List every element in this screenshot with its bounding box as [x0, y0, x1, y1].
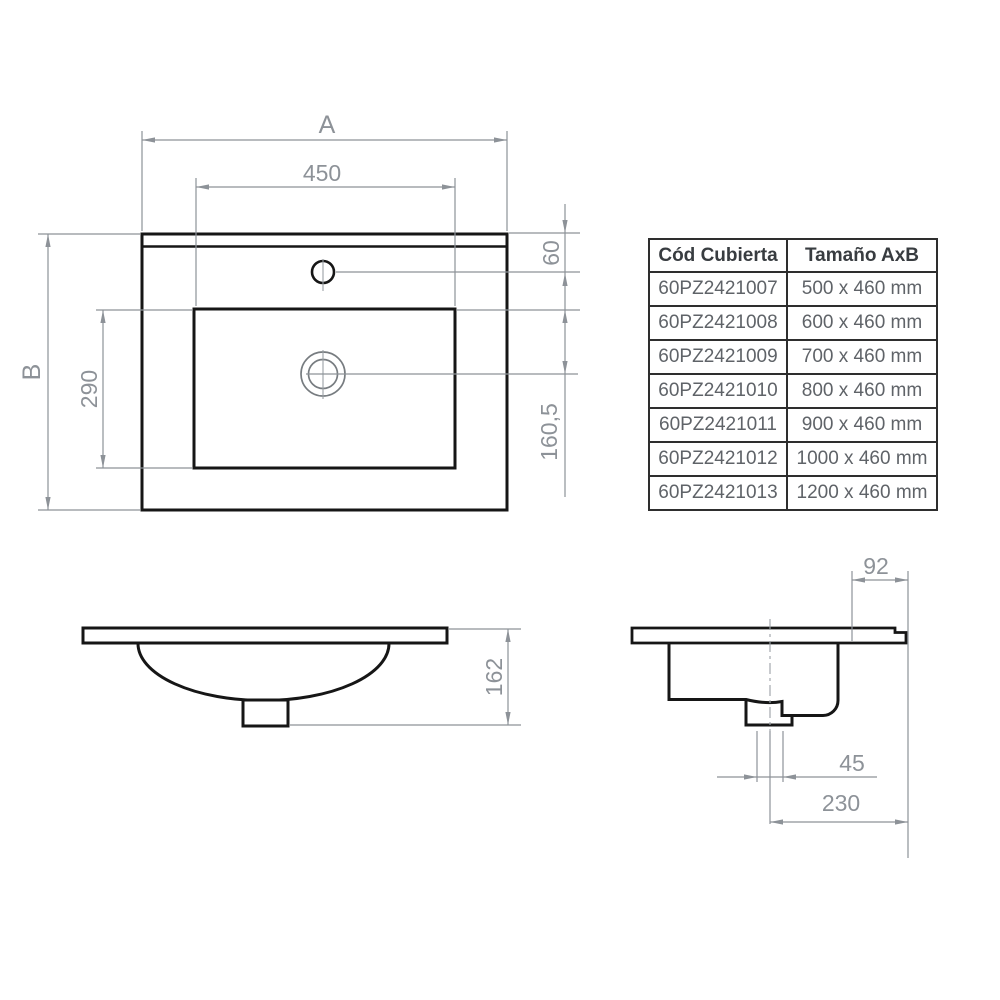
dim-label-B: B [18, 364, 46, 381]
column-header-size: Tamaño AxB [787, 239, 937, 272]
dim-label-A: A [319, 111, 336, 139]
size-cell: 700 x 460 mm [787, 340, 937, 374]
table-row: 60PZ2421011 900 x 460 mm [649, 408, 937, 442]
dim-label-290: 290 [76, 370, 102, 408]
front-bowl-arc [138, 644, 389, 701]
side-countertop [632, 628, 906, 643]
size-cell: 500 x 460 mm [787, 272, 937, 306]
plan-view [142, 234, 507, 510]
front-drain-stub [243, 700, 288, 726]
code-cell: 60PZ2421007 [649, 272, 787, 306]
side-view [632, 628, 906, 725]
side-basin-profile [669, 643, 838, 716]
size-cell: 900 x 460 mm [787, 408, 937, 442]
size-cell: 1000 x 460 mm [787, 442, 937, 476]
table-row: 60PZ2421010 800 x 460 mm [649, 374, 937, 408]
size-table: Cód Cubierta Tamaño AxB 60PZ2421007 500 … [648, 238, 938, 511]
code-cell: 60PZ2421009 [649, 340, 787, 374]
table-row: 60PZ2421013 1200 x 460 mm [649, 476, 937, 510]
dim-label-230: 230 [822, 790, 860, 816]
dim-label-45: 45 [839, 750, 865, 776]
dim-label-450: 450 [303, 160, 341, 186]
drawing-sheet: A 450 B 290 60 160,5 162 [0, 0, 1000, 1000]
code-cell: 60PZ2421013 [649, 476, 787, 510]
size-table-header-row: Cód Cubierta Tamaño AxB [649, 239, 937, 272]
dim-label-60: 60 [538, 240, 564, 266]
code-cell: 60PZ2421008 [649, 306, 787, 340]
code-cell: 60PZ2421011 [649, 408, 787, 442]
column-header-code: Cód Cubierta [649, 239, 787, 272]
table-row: 60PZ2421008 600 x 460 mm [649, 306, 937, 340]
dim-label-92: 92 [863, 553, 889, 579]
front-view [83, 628, 447, 726]
front-countertop [83, 628, 447, 643]
size-cell: 1200 x 460 mm [787, 476, 937, 510]
code-cell: 60PZ2421010 [649, 374, 787, 408]
table-row: 60PZ2421012 1000 x 460 mm [649, 442, 937, 476]
dim-label-160-5: 160,5 [536, 403, 562, 461]
dim-label-162: 162 [481, 658, 507, 696]
side-dimension-arrows [744, 577, 908, 824]
size-cell: 600 x 460 mm [787, 306, 937, 340]
table-row: 60PZ2421009 700 x 460 mm [649, 340, 937, 374]
size-cell: 800 x 460 mm [787, 374, 937, 408]
code-cell: 60PZ2421012 [649, 442, 787, 476]
table-row: 60PZ2421007 500 x 460 mm [649, 272, 937, 306]
